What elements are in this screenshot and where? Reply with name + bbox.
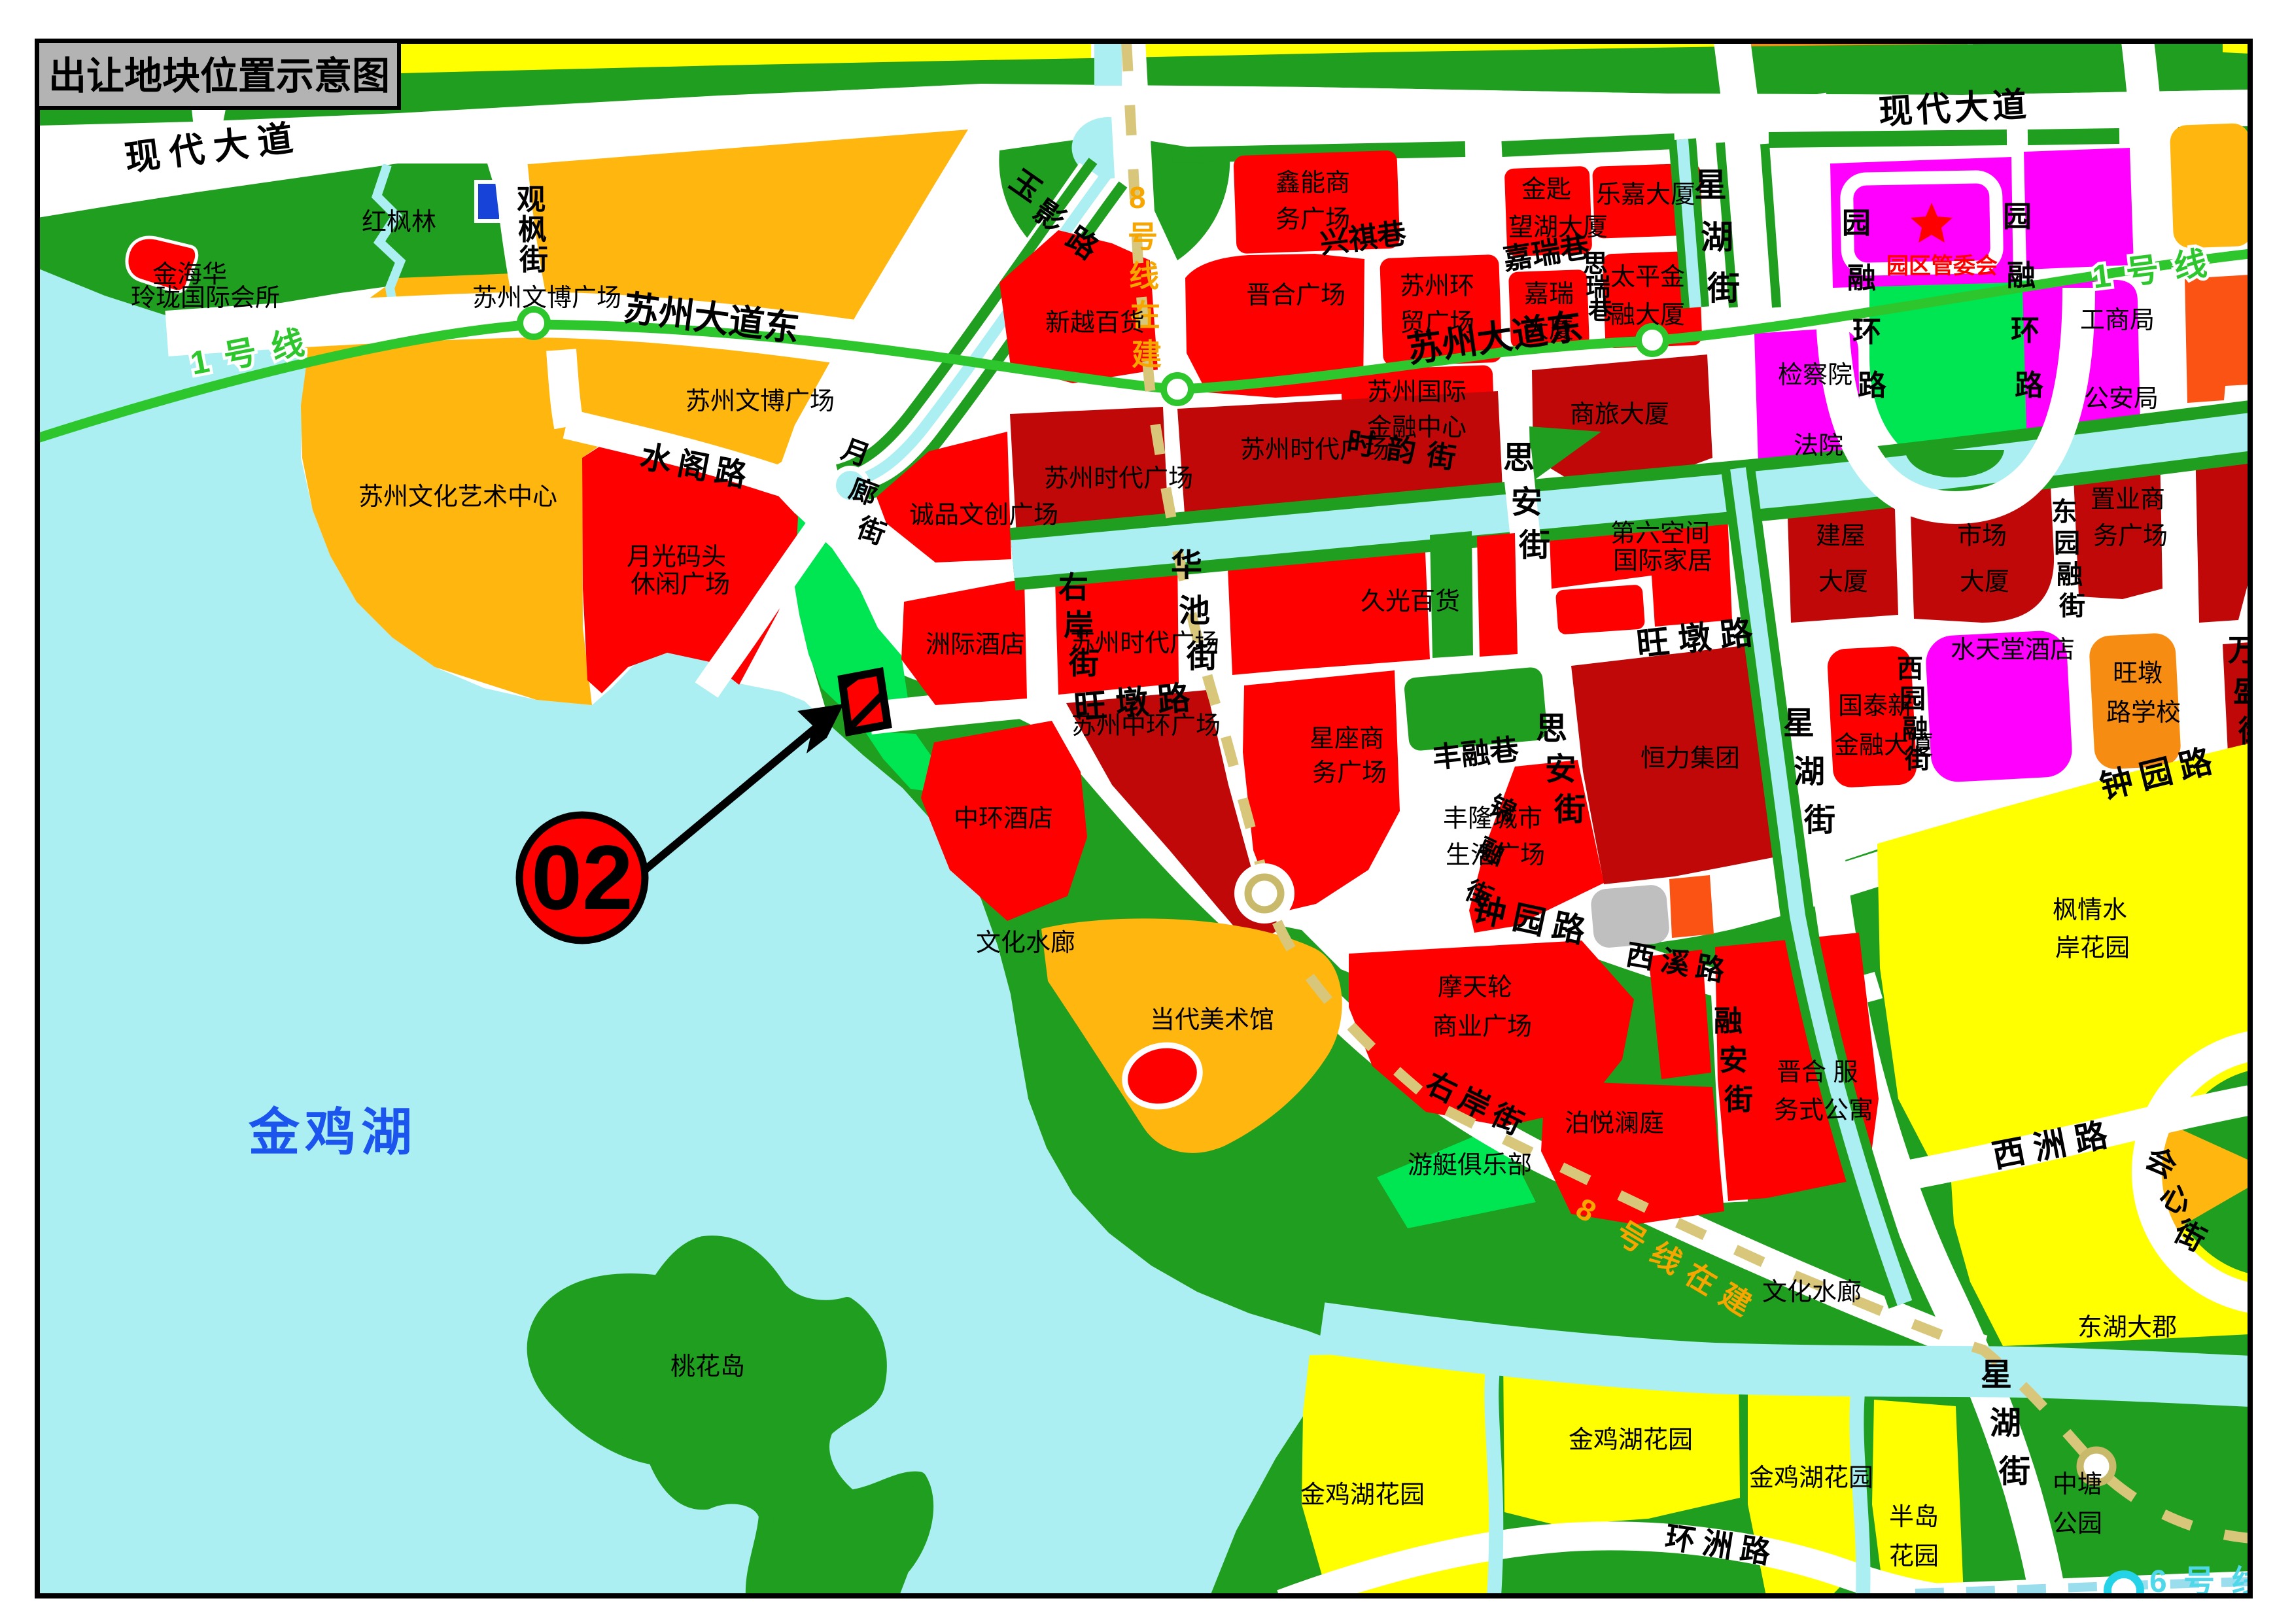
svg-text:湖: 湖 xyxy=(1701,219,1733,256)
svg-text:市场: 市场 xyxy=(1957,523,2007,550)
svg-text:新越百货: 新越百货 xyxy=(1045,309,1145,337)
svg-text:东湖大郡: 东湖大郡 xyxy=(2077,1314,2177,1341)
svg-text:出让地块位置示意图: 出让地块位置示意图 xyxy=(48,55,390,97)
svg-text:嘉瑞: 嘉瑞 xyxy=(1524,281,1574,308)
svg-text:月光码头: 月光码头 xyxy=(627,544,726,571)
svg-text:晋合 服: 晋合 服 xyxy=(1777,1059,1858,1086)
svg-text:金鸡湖花园: 金鸡湖花园 xyxy=(1749,1464,1873,1492)
svg-text:安: 安 xyxy=(1545,752,1576,787)
svg-text:文化水廊: 文化水廊 xyxy=(976,929,1075,957)
svg-text:园: 园 xyxy=(2003,201,2032,233)
svg-text:商业广场: 商业广场 xyxy=(1432,1013,1532,1041)
svg-text:务广场: 务广场 xyxy=(2093,523,2168,550)
svg-text:思: 思 xyxy=(1536,712,1567,746)
svg-text:务广场: 务广场 xyxy=(1312,759,1387,787)
svg-text:晋合广场: 晋合广场 xyxy=(1246,282,1346,309)
svg-text:金鸡湖: 金鸡湖 xyxy=(248,1103,417,1161)
svg-text:华: 华 xyxy=(1171,548,1202,583)
svg-text:金鸡湖花园: 金鸡湖花园 xyxy=(1569,1426,1693,1454)
svg-text:苏州文博广场: 苏州文博广场 xyxy=(472,285,621,312)
svg-text:右: 右 xyxy=(1058,570,1088,604)
svg-text:文化水廊: 文化水廊 xyxy=(1762,1279,1862,1306)
svg-text:水天堂酒店: 水天堂酒店 xyxy=(1951,636,2075,664)
svg-text:融大厦: 融大厦 xyxy=(1610,302,1685,329)
svg-text:游艇俱乐部: 游艇俱乐部 xyxy=(1408,1152,1532,1179)
svg-text:02: 02 xyxy=(531,826,633,929)
svg-text:久光百货: 久光百货 xyxy=(1361,588,1460,615)
svg-text:苏州文化艺术中心: 苏州文化艺术中心 xyxy=(358,483,557,511)
svg-text:恒力集团: 恒力集团 xyxy=(1641,745,1740,772)
svg-text:摩天轮: 摩天轮 xyxy=(1438,974,1512,1001)
svg-text:旺墩: 旺墩 xyxy=(2113,660,2162,687)
svg-text:第六空间: 第六空间 xyxy=(1610,520,1710,547)
svg-text:贸广场: 贸广场 xyxy=(1400,309,1474,337)
svg-text:生活广场: 生活广场 xyxy=(1446,842,1545,869)
svg-text:观: 观 xyxy=(517,184,546,216)
svg-text:湖: 湖 xyxy=(1794,755,1825,789)
svg-text:置业商: 置业商 xyxy=(2091,486,2165,513)
svg-text:园: 园 xyxy=(1842,207,1871,239)
svg-text:融: 融 xyxy=(2057,561,2083,589)
svg-text:思: 思 xyxy=(1503,441,1535,475)
svg-text:金鸡湖花园: 金鸡湖花园 xyxy=(1300,1481,1425,1509)
svg-text:半岛: 半岛 xyxy=(1889,1504,1939,1531)
svg-text:红枫林: 红枫林 xyxy=(362,209,436,236)
svg-text:中环酒店: 中环酒店 xyxy=(954,805,1053,833)
svg-text:融: 融 xyxy=(1714,1005,1743,1037)
svg-text:苏州中环广场: 苏州中环广场 xyxy=(1071,712,1221,740)
svg-text:国际家居: 国际家居 xyxy=(1613,547,1712,575)
svg-text:建屋: 建屋 xyxy=(1816,523,1866,550)
svg-text:星: 星 xyxy=(1694,167,1727,203)
svg-text:街: 街 xyxy=(1724,1084,1753,1116)
svg-text:乐嘉大厦: 乐嘉大厦 xyxy=(1596,181,1695,209)
svg-text:苏州环: 苏州环 xyxy=(1400,273,1474,300)
svg-text:务式公寓: 务式公寓 xyxy=(1774,1097,1873,1124)
svg-text:法院: 法院 xyxy=(1794,432,1843,460)
svg-text:工商局: 工商局 xyxy=(2080,307,2155,334)
svg-text:苏州时代广场: 苏州时代广场 xyxy=(1044,465,1193,492)
svg-text:星: 星 xyxy=(1783,706,1814,741)
svg-text:大厦: 大厦 xyxy=(1524,316,1574,343)
svg-text:金匙: 金匙 xyxy=(1521,176,1571,203)
svg-text:休闲广场: 休闲广场 xyxy=(631,571,730,598)
svg-text:大厦: 大厦 xyxy=(1818,568,1868,596)
svg-text:公园: 公园 xyxy=(2053,1510,2102,1538)
svg-text:线: 线 xyxy=(1129,259,1159,293)
svg-text:湖: 湖 xyxy=(1990,1406,2021,1441)
svg-text:枫: 枫 xyxy=(518,214,547,246)
svg-text:枫情水: 枫情水 xyxy=(2053,897,2127,924)
svg-text:公安局: 公安局 xyxy=(2084,385,2159,413)
svg-text:街: 街 xyxy=(1518,528,1550,563)
svg-text:泊悦澜庭: 泊悦澜庭 xyxy=(1565,1110,1664,1137)
svg-text:融: 融 xyxy=(1847,262,1876,294)
svg-text:洲际酒店: 洲际酒店 xyxy=(926,631,1025,659)
svg-text:苏州国际: 苏州国际 xyxy=(1367,379,1467,406)
svg-text:诚品文创广场: 诚品文创广场 xyxy=(909,502,1058,529)
svg-text:检察院: 检察院 xyxy=(1778,362,1852,389)
svg-text:鑫能商: 鑫能商 xyxy=(1276,169,1350,197)
svg-text:路: 路 xyxy=(1858,370,1887,402)
svg-text:商旅大厦: 商旅大厦 xyxy=(1570,401,1669,428)
svg-text:星座商: 星座商 xyxy=(1310,725,1384,753)
svg-text:环: 环 xyxy=(1852,316,1881,348)
svg-text:路学校: 路学校 xyxy=(2106,699,2181,727)
svg-text:星: 星 xyxy=(1981,1358,2012,1392)
svg-text:融: 融 xyxy=(2007,260,2036,292)
svg-text:街: 街 xyxy=(1803,803,1835,838)
svg-text:街: 街 xyxy=(1707,270,1740,307)
svg-text:建: 建 xyxy=(1132,337,1162,371)
svg-text:大厦: 大厦 xyxy=(1960,568,2009,596)
svg-text:丰隆城市: 丰隆城市 xyxy=(1443,805,1542,833)
svg-text:太平金: 太平金 xyxy=(1610,264,1685,291)
svg-text:金融大厦: 金融大厦 xyxy=(1834,732,1934,759)
svg-text:街: 街 xyxy=(2058,592,2085,621)
svg-text:安: 安 xyxy=(1719,1045,1748,1077)
svg-text:8: 8 xyxy=(1129,181,1146,215)
svg-text:西: 西 xyxy=(1897,655,1923,683)
svg-text:园区管委会: 园区管委会 xyxy=(1886,254,1998,279)
svg-text:街: 街 xyxy=(1068,646,1099,680)
svg-text:苏州文博广场: 苏州文博广场 xyxy=(686,388,835,415)
svg-text:街: 街 xyxy=(1186,640,1218,674)
svg-text:东: 东 xyxy=(2051,498,2077,527)
svg-text:号: 号 xyxy=(1128,220,1158,254)
svg-text:国泰新: 国泰新 xyxy=(1838,693,1913,720)
svg-text:园: 园 xyxy=(2054,529,2080,558)
svg-text:街: 街 xyxy=(1554,793,1586,827)
svg-text:环: 环 xyxy=(2011,315,2040,347)
svg-text:街: 街 xyxy=(519,244,548,276)
svg-text:花园: 花园 xyxy=(1889,1543,1939,1570)
svg-text:当代美术馆: 当代美术馆 xyxy=(1150,1007,1274,1034)
svg-text:岸花园: 岸花园 xyxy=(2055,935,2130,962)
svg-text:路: 路 xyxy=(2015,370,2044,402)
svg-text:池: 池 xyxy=(1179,594,1210,629)
svg-text:桃花岛: 桃花岛 xyxy=(670,1353,745,1381)
svg-text:安: 安 xyxy=(1511,485,1542,520)
svg-text:街: 街 xyxy=(1998,1455,2030,1489)
svg-text:现代大道: 现代大道 xyxy=(1878,86,2032,131)
svg-text:岸: 岸 xyxy=(1064,608,1094,642)
svg-text:玲珑国际会所: 玲珑国际会所 xyxy=(131,285,280,312)
svg-text:中塘: 中塘 xyxy=(2053,1471,2102,1498)
